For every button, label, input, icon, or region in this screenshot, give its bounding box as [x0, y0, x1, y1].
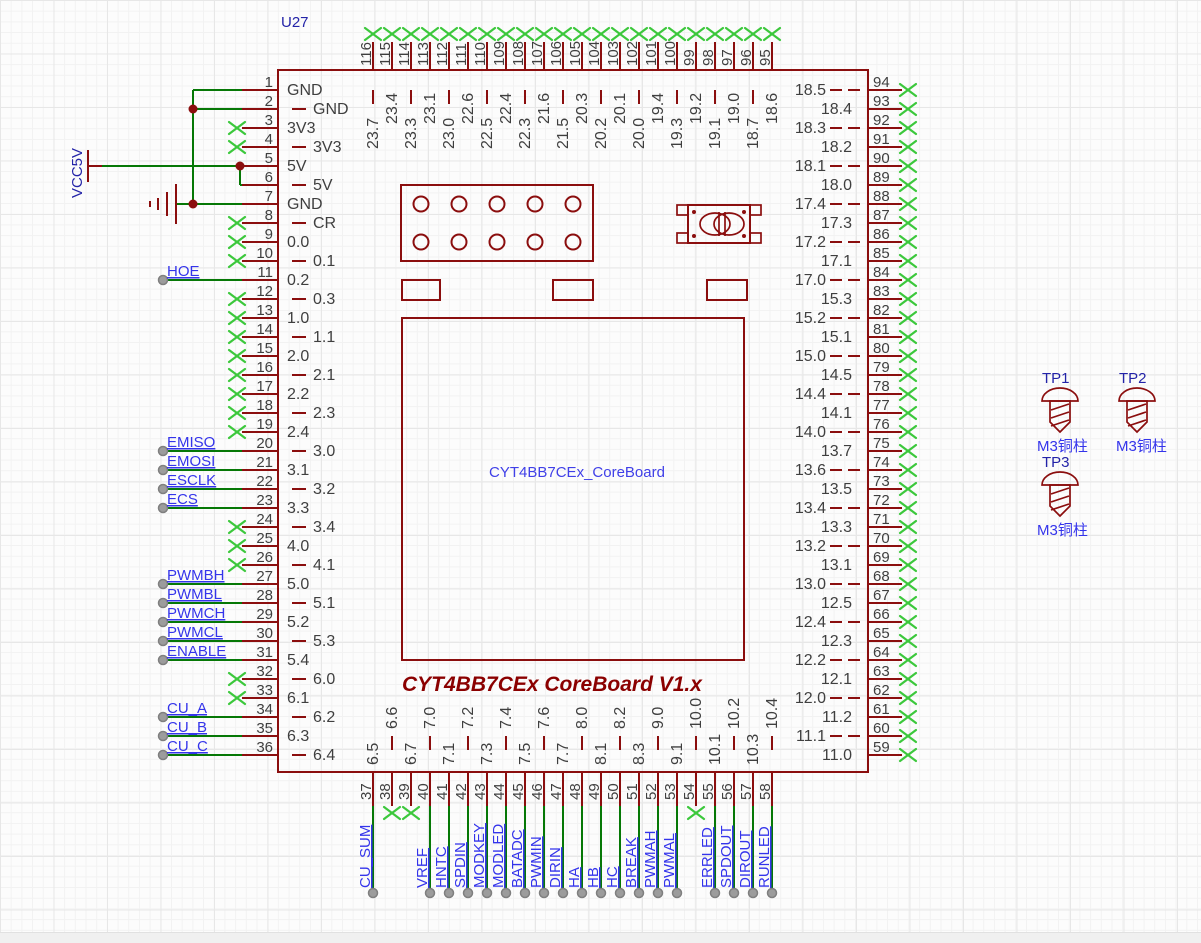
- pin-number: 49: [586, 783, 603, 800]
- testpoint-label: M3铜柱: [1116, 438, 1167, 455]
- pin-number: 105: [567, 41, 584, 66]
- vcc-symbol[interactable]: VCC5V: [69, 148, 102, 198]
- pin-name: 2.0: [287, 348, 309, 365]
- net-label[interactable]: HOE: [167, 263, 200, 280]
- pin-name: 0.2: [287, 272, 309, 289]
- pin-name: CR: [313, 215, 336, 232]
- pin-name: 3.1: [287, 462, 309, 479]
- pin-number: 38: [377, 783, 394, 800]
- pin-name: GND: [287, 82, 323, 99]
- net-label[interactable]: SPDIN: [452, 842, 469, 888]
- net-label[interactable]: EMISO: [167, 434, 215, 451]
- pin-number: 79: [873, 359, 890, 376]
- pin-number: 89: [873, 169, 890, 186]
- net-label[interactable]: DIRIN: [547, 847, 564, 888]
- pin-name: 4.1: [313, 557, 335, 574]
- wire-terminal[interactable]: [483, 889, 492, 898]
- pin-number: 33: [256, 682, 273, 699]
- testpoint-label: M3铜柱: [1037, 438, 1088, 455]
- connector-hole: [566, 235, 581, 250]
- pin-name: 15.1: [821, 329, 852, 346]
- pin-name: 2.2: [287, 386, 309, 403]
- pin-number: 107: [529, 41, 546, 66]
- pin-number: 11: [257, 264, 273, 281]
- screw-icon[interactable]: [1042, 388, 1078, 432]
- vcc-net-label[interactable]: VCC5V: [69, 148, 86, 198]
- pin-name: 13.7: [821, 443, 852, 460]
- pin-number: 58: [757, 783, 774, 800]
- pin-name: 18.5: [795, 82, 826, 99]
- pin-number: 83: [873, 283, 890, 300]
- pin-name: 22.6: [460, 93, 477, 124]
- power-wiring[interactable]: [102, 90, 245, 209]
- pin-number: 44: [491, 783, 508, 800]
- wire-terminal[interactable]: [616, 889, 625, 898]
- wire-terminal[interactable]: [654, 889, 663, 898]
- net-label[interactable]: CU_B: [167, 719, 207, 736]
- wire-terminal[interactable]: [597, 889, 606, 898]
- pin-number: 67: [873, 587, 890, 604]
- net-label[interactable]: CU_A: [167, 700, 207, 717]
- pin-name: 21.5: [555, 118, 572, 149]
- pin-number: 29: [256, 606, 273, 623]
- pin-number: 18: [256, 397, 273, 414]
- pin-number: 54: [681, 783, 698, 800]
- wire-terminal[interactable]: [559, 889, 568, 898]
- pin-name: 11.2: [822, 709, 852, 726]
- pin-number: 28: [256, 587, 273, 604]
- pin-name: 13.2: [795, 538, 826, 555]
- net-label[interactable]: VREF: [414, 848, 431, 888]
- pin-number: 32: [256, 663, 273, 680]
- pin-name: 8.3: [631, 743, 648, 765]
- pin-number: 52: [643, 783, 660, 800]
- pin-number: 104: [586, 41, 603, 66]
- pin-name: 12.1: [821, 671, 852, 688]
- pin-number: 7: [265, 188, 273, 205]
- pin-number: 37: [358, 783, 375, 800]
- pin-name: 15.0: [795, 348, 826, 365]
- inner-outline: [402, 318, 744, 660]
- pin-name: 3.0: [313, 443, 335, 460]
- pin-number: 56: [719, 783, 736, 800]
- net-label[interactable]: PWMAL: [661, 833, 678, 888]
- connector-hole: [528, 197, 543, 212]
- pin-name: 13.3: [821, 519, 852, 536]
- pin-name: 22.4: [498, 93, 515, 124]
- pin-name: 13.6: [795, 462, 826, 479]
- pin-number: 53: [662, 783, 679, 800]
- connector-hole: [528, 235, 543, 250]
- pin-number: 5: [265, 150, 273, 167]
- pin-number: 51: [624, 783, 641, 800]
- pin-name: 18.7: [745, 118, 762, 149]
- pin-number: 31: [256, 644, 273, 661]
- net-label[interactable]: PWMCL: [167, 624, 223, 641]
- pin-number: 13: [256, 302, 273, 319]
- pin-number: 111: [453, 43, 470, 66]
- pin-number: 4: [265, 131, 273, 148]
- net-label[interactable]: HC: [604, 866, 621, 888]
- pin-name: GND: [313, 101, 349, 118]
- pin-number: 39: [396, 783, 413, 800]
- net-label[interactable]: ESCLK: [167, 472, 216, 489]
- pin-number: 81: [873, 321, 890, 338]
- pin-number: 8: [265, 207, 273, 224]
- pin-name: 19.4: [650, 93, 667, 124]
- pin-number: 101: [643, 41, 660, 66]
- testpoint-ref: TP3: [1042, 454, 1070, 471]
- pin-number: 64: [873, 644, 890, 661]
- pin-number: 86: [873, 226, 890, 243]
- pin-name: 19.2: [688, 93, 705, 124]
- pin-name: 10.3: [745, 734, 762, 765]
- pin-number: 82: [873, 302, 890, 319]
- junction-dot: [189, 105, 198, 114]
- wire-terminal[interactable]: [635, 889, 644, 898]
- ground-symbol[interactable]: [150, 184, 176, 224]
- pin-number: 87: [873, 207, 890, 224]
- pin-number: 27: [256, 568, 273, 585]
- board-title[interactable]: CYT4BB7CEx CoreBoard V1.x: [402, 673, 703, 696]
- pin-number: 88: [873, 188, 890, 205]
- connector-hole: [452, 197, 467, 212]
- pin-name: 7.5: [517, 743, 534, 765]
- pin-number: 75: [873, 435, 890, 452]
- net-label[interactable]: PWMBH: [167, 567, 225, 584]
- pin-number: 45: [510, 783, 527, 800]
- pin-name: 7.1: [441, 743, 458, 765]
- pin-name: 6.1: [287, 690, 309, 707]
- pin-name: 6.3: [287, 728, 309, 745]
- connector-footprint: [401, 185, 593, 261]
- pin-number: 59: [873, 739, 890, 756]
- pin-number: 14: [256, 321, 273, 338]
- pin-number: 68: [873, 568, 890, 585]
- connector-hole: [566, 197, 581, 212]
- pin-name: 6.2: [313, 709, 335, 726]
- wire-terminal[interactable]: [768, 889, 777, 898]
- connector-hole: [414, 197, 429, 212]
- pin-number: 23: [256, 492, 273, 509]
- pin-name: 9.1: [669, 743, 686, 765]
- net-label[interactable]: SPDOUT: [718, 825, 735, 888]
- pin-number: 85: [873, 245, 890, 262]
- pin-name: 8.0: [574, 707, 591, 729]
- pad-rect: [707, 280, 747, 300]
- pin-number: 17: [256, 378, 273, 395]
- pin-name: 0.3: [313, 291, 335, 308]
- pin-name: 2.3: [313, 405, 335, 422]
- pin-name: 7.4: [498, 707, 515, 729]
- pin-name: 7.7: [555, 743, 572, 765]
- connector-hole: [490, 235, 505, 250]
- pin-name: 4.0: [287, 538, 309, 555]
- pin-number: 103: [605, 41, 622, 66]
- pin-number: 15: [256, 340, 273, 357]
- pin-name: 0.1: [313, 253, 335, 270]
- pin-name: 18.3: [795, 120, 826, 137]
- pin-name: 20.2: [593, 118, 610, 149]
- pin-name: 20.1: [612, 93, 629, 124]
- pin-number: 65: [873, 625, 890, 642]
- wire-terminal[interactable]: [540, 889, 549, 898]
- junction-dot: [189, 200, 198, 209]
- pin-number: 36: [256, 739, 273, 756]
- pin-name: 14.0: [795, 424, 826, 441]
- net-label[interactable]: ERRLED: [699, 827, 716, 888]
- pin-number: 110: [472, 42, 489, 66]
- net-label[interactable]: RUNLED: [756, 826, 773, 888]
- pin-number: 71: [873, 511, 890, 528]
- pin-number: 61: [873, 701, 890, 718]
- wire-terminal[interactable]: [749, 889, 758, 898]
- pin-name: 15.2: [795, 310, 826, 327]
- pin-number: 102: [624, 41, 641, 66]
- pin-name: 15.3: [821, 291, 852, 308]
- pin-name: 1.1: [313, 329, 335, 346]
- pin-number: 3: [265, 112, 273, 129]
- pin-name: 3.2: [313, 481, 335, 498]
- pin-name: 12.3: [821, 633, 852, 650]
- pin-name: 17.0: [795, 272, 826, 289]
- horizontal-scrollbar[interactable]: [0, 932, 1201, 943]
- pad-rect: [553, 280, 593, 300]
- net-label[interactable]: BATADC: [509, 829, 526, 888]
- pin-name: 7.6: [536, 707, 553, 729]
- pin-name: GND: [287, 196, 323, 213]
- pin-number: 69: [873, 549, 890, 566]
- pin-name: 3.4: [313, 519, 335, 536]
- pin-number: 2: [265, 93, 273, 110]
- pin-name: 6.6: [384, 707, 401, 729]
- pin-name: 5V: [313, 177, 333, 194]
- pin-name: 19.0: [726, 93, 743, 124]
- wire-terminal[interactable]: [711, 889, 720, 898]
- pin-number: 60: [873, 720, 890, 737]
- pin-name: 10.2: [726, 698, 743, 729]
- wire-terminal[interactable]: [426, 889, 435, 898]
- pin-number: 41: [434, 783, 451, 800]
- pin-number: 42: [453, 783, 470, 800]
- pin-name: 7.2: [460, 707, 477, 729]
- pin-name: 3V3: [313, 139, 342, 156]
- pin-number: 22: [256, 473, 273, 490]
- screw-icon[interactable]: [1119, 388, 1155, 432]
- pin-name: 3V3: [287, 120, 316, 137]
- pin-name: 23.0: [441, 118, 458, 149]
- pin-name: 5.3: [313, 633, 335, 650]
- pin-name: 18.6: [764, 93, 781, 124]
- pin-name: 19.1: [707, 118, 724, 149]
- net-label[interactable]: DIROUT: [737, 831, 754, 889]
- wire-terminal[interactable]: [369, 889, 378, 898]
- pin-name: 5.0: [287, 576, 309, 593]
- pin-name: 5V: [287, 158, 307, 175]
- pin-name: 13.5: [821, 481, 852, 498]
- pin-number: 43: [472, 783, 489, 800]
- screw-icon[interactable]: [1042, 472, 1078, 516]
- pin-number: 80: [873, 340, 890, 357]
- wire-terminal[interactable]: [502, 889, 511, 898]
- pin-number: 72: [873, 492, 890, 509]
- net-label[interactable]: CU_SUM: [357, 825, 374, 888]
- pin-number: 84: [873, 264, 890, 281]
- pin-number: 109: [491, 41, 508, 66]
- pin-number: 70: [873, 530, 890, 547]
- net-label[interactable]: MODKEY: [471, 823, 488, 888]
- pin-number: 24: [256, 511, 273, 528]
- pin-number: 1: [265, 74, 273, 91]
- wire-terminal[interactable]: [578, 889, 587, 898]
- pin-name: 2.4: [287, 424, 309, 441]
- pin-number: 91: [873, 131, 890, 148]
- pin-number: 9: [265, 226, 273, 243]
- pin-name: 6.4: [313, 747, 335, 764]
- net-label[interactable]: PWMBL: [167, 586, 222, 603]
- wire-terminal[interactable]: [521, 889, 530, 898]
- pin-name: 17.4: [795, 196, 826, 213]
- pin-name: 14.5: [821, 367, 852, 384]
- pad-rect: [402, 280, 440, 300]
- pin-name: 18.4: [821, 101, 852, 118]
- pin-number: 73: [873, 473, 890, 490]
- pin-name: 14.4: [795, 386, 826, 403]
- pin-number: 20: [256, 435, 273, 452]
- net-label[interactable]: PWMIN: [528, 836, 545, 888]
- pin-name: 3.3: [287, 500, 309, 517]
- pin-number: 76: [873, 416, 890, 433]
- net-label[interactable]: PWMCH: [167, 605, 225, 622]
- pin-number: 10: [256, 245, 273, 262]
- pin-number: 74: [873, 454, 890, 471]
- wire-terminal[interactable]: [673, 889, 682, 898]
- pin-name: 12.2: [795, 652, 826, 669]
- pin-name: 8.2: [612, 707, 629, 729]
- pin-name: 10.0: [688, 698, 705, 729]
- pin-name: 23.7: [365, 118, 382, 149]
- pin-number: 113: [415, 42, 432, 66]
- pin-name: 22.3: [517, 118, 534, 149]
- net-label[interactable]: PWMAH: [642, 831, 659, 889]
- pin-name: 17.3: [821, 215, 852, 232]
- pin-number: 40: [415, 783, 432, 800]
- net-label[interactable]: ENABLE: [167, 643, 226, 660]
- pin-number: 16: [256, 359, 273, 376]
- pin-number: 92: [873, 112, 890, 129]
- pin-name: 13.1: [821, 557, 852, 574]
- net-label[interactable]: EMOSI: [167, 453, 215, 470]
- pin-name: 23.3: [403, 118, 420, 149]
- pin-name: 14.1: [821, 405, 852, 422]
- connector-hole: [414, 235, 429, 250]
- pin-number: 12: [256, 283, 273, 300]
- pin-name: 1.0: [287, 310, 309, 327]
- pin-name: 18.1: [795, 158, 826, 175]
- pin-name: 17.1: [821, 253, 852, 270]
- pin-number: 21: [256, 454, 273, 471]
- pin-name: 9.0: [650, 707, 667, 729]
- pin-name: 23.4: [384, 93, 401, 124]
- pin-number: 98: [700, 49, 717, 66]
- pin-name: 7.3: [479, 743, 496, 765]
- pin-number: 77: [873, 397, 890, 414]
- net-label[interactable]: HA: [566, 867, 583, 888]
- pin-name: 6.7: [403, 743, 420, 765]
- oscillator-footprint: [677, 205, 761, 243]
- pin-name: 10.1: [707, 734, 724, 765]
- pin-number: 108: [510, 41, 527, 66]
- wire-terminal[interactable]: [445, 889, 454, 898]
- pin-name: 11.0: [822, 747, 852, 764]
- pin-number: 99: [681, 49, 698, 66]
- testpoint-ref: TP2: [1119, 370, 1147, 387]
- net-label[interactable]: ECS: [167, 491, 198, 508]
- pin-number: 62: [873, 682, 890, 699]
- pin-number: 57: [738, 783, 755, 800]
- pin-number: 35: [256, 720, 273, 737]
- net-label[interactable]: MODLED: [490, 824, 507, 888]
- pin-number: 6: [265, 169, 273, 186]
- pin-name: 7.0: [422, 707, 439, 729]
- testpoint-label: M3铜柱: [1037, 522, 1088, 539]
- pin-name: 18.2: [821, 139, 852, 156]
- net-label[interactable]: HB: [585, 867, 602, 888]
- pin-name: 5.1: [313, 595, 335, 612]
- pin-name: 8.1: [593, 743, 610, 765]
- component-name: CYT4BB7CEx_CoreBoard: [489, 464, 665, 481]
- pin-name: 13.0: [795, 576, 826, 593]
- designator[interactable]: U27: [281, 14, 309, 31]
- pin-number: 93: [873, 93, 890, 110]
- net-label[interactable]: HNTC: [433, 846, 450, 888]
- wire-terminal[interactable]: [730, 889, 739, 898]
- pin-name: 17.2: [795, 234, 826, 251]
- pin-number: 25: [256, 530, 273, 547]
- pin-name: 12.4: [795, 614, 826, 631]
- pin-number: 106: [548, 41, 565, 66]
- net-label[interactable]: CU_C: [167, 738, 208, 755]
- wire-terminal[interactable]: [464, 889, 473, 898]
- pin-number: 63: [873, 663, 890, 680]
- pin-number: 19: [256, 416, 273, 433]
- pin-name: 19.3: [669, 118, 686, 149]
- pin-name: 23.1: [422, 93, 439, 124]
- pin-number: 50: [605, 783, 622, 800]
- pin-name: 20.3: [574, 93, 591, 124]
- pin-number: 78: [873, 378, 890, 395]
- pin-number: 47: [548, 783, 565, 800]
- pin-name: 20.0: [631, 118, 648, 149]
- pin-name: 0.0: [287, 234, 309, 251]
- chip-body[interactable]: [278, 70, 868, 772]
- pin-number: 66: [873, 606, 890, 623]
- pin-number: 96: [738, 49, 755, 66]
- pin-name: 11.1: [796, 728, 826, 745]
- pin-number: 94: [873, 74, 890, 91]
- net-label[interactable]: BREAK: [623, 837, 640, 888]
- pin-number: 48: [567, 783, 584, 800]
- pin-name: 6.5: [365, 743, 382, 765]
- pin-number: 116: [358, 42, 375, 66]
- pin-name: 6.0: [313, 671, 335, 688]
- testpoint-ref: TP1: [1042, 370, 1070, 387]
- pin-number: 55: [700, 783, 717, 800]
- pin-number: 30: [256, 625, 273, 642]
- pin-number: 34: [256, 701, 273, 718]
- pin-name: 2.1: [313, 367, 335, 384]
- pin-number: 115: [377, 42, 394, 66]
